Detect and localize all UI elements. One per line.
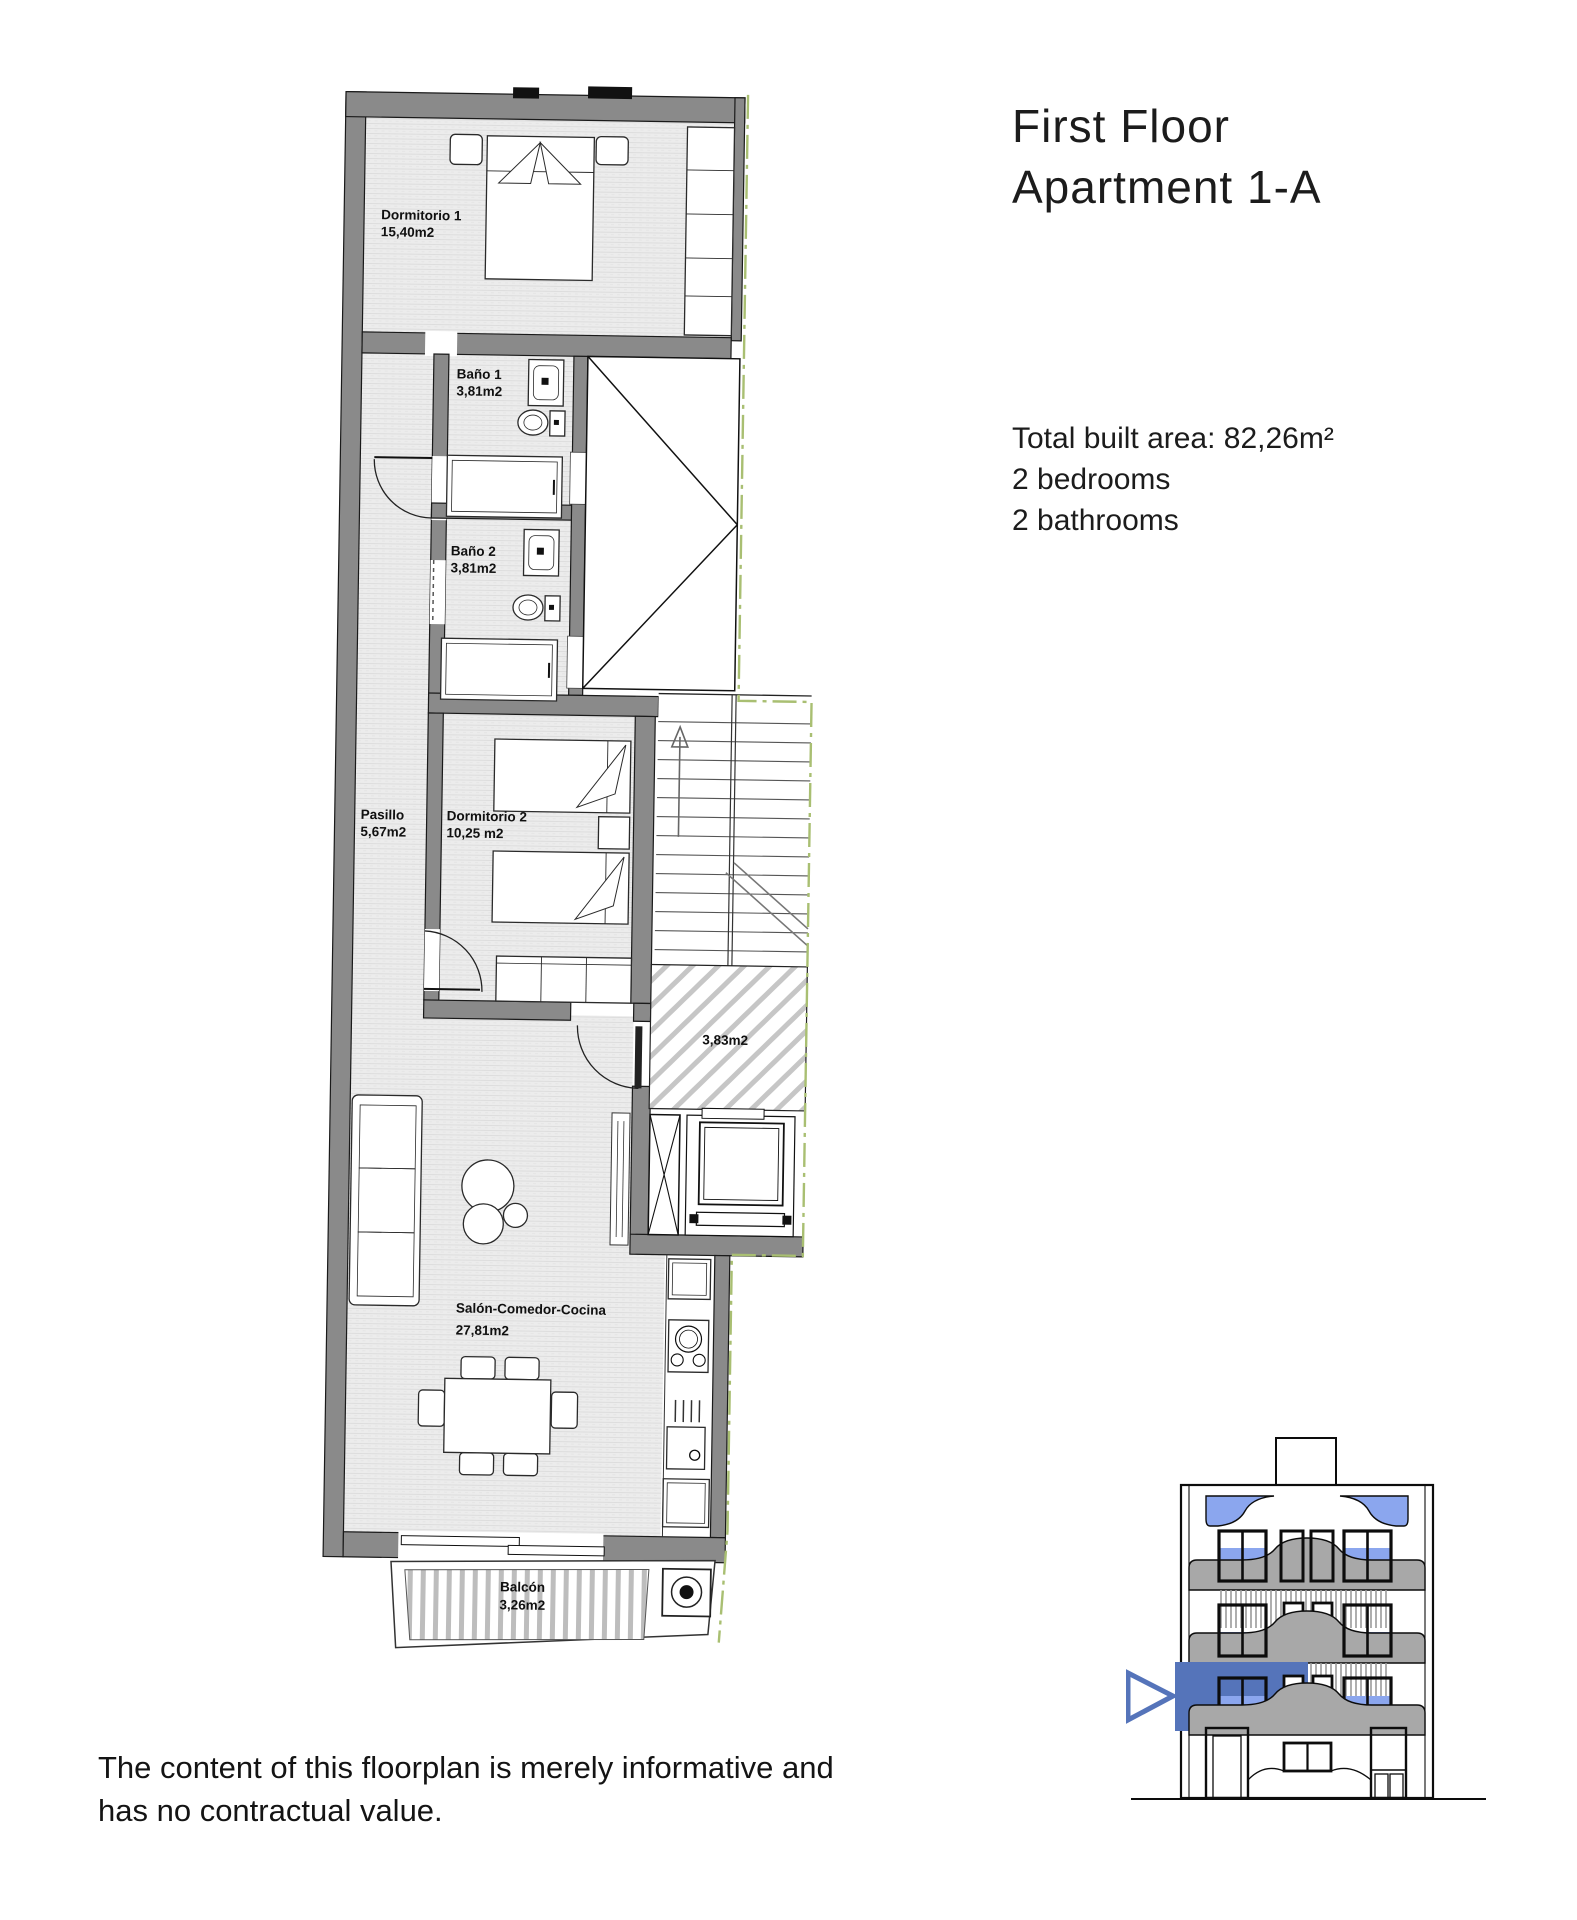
bathrooms-text: 2 bathrooms [1012, 500, 1334, 541]
landing-area-label: 3,83m2 [702, 1032, 748, 1048]
bano2-area: 3,81m2 [450, 560, 496, 576]
void-area [583, 356, 740, 690]
wardrobe [684, 127, 734, 336]
kitchen-sink-unit [666, 1427, 705, 1470]
dormitorio2-furniture [491, 739, 635, 1003]
title-line-2: Apartment 1-A [1012, 157, 1322, 218]
page-title: First Floor Apartment 1-A [1012, 96, 1322, 218]
chair [459, 1453, 493, 1476]
dormitorio2-label: Dormitorio 2 [447, 808, 527, 824]
elevator [648, 1107, 795, 1236]
sliding-door [401, 1536, 519, 1547]
chair [505, 1357, 539, 1380]
toilet [518, 410, 548, 435]
salon-area: 27,81m2 [456, 1322, 510, 1338]
landing-area: 3,83m2 [649, 965, 807, 1111]
toilet [513, 595, 543, 620]
sliding-door [508, 1545, 604, 1556]
disclaimer-line-2: has no contractual value. [98, 1789, 834, 1832]
floorplan-page: 3,83m2 [0, 0, 1577, 1920]
summary-block: Total built area: 82,26m² 2 bedrooms 2 b… [1012, 418, 1334, 541]
bedrooms-text: 2 bedrooms [1012, 459, 1334, 500]
bano2-label: Baño 2 [451, 543, 496, 559]
salon-wall-window [610, 1113, 630, 1245]
building-elevation [1126, 1418, 1506, 1838]
unit-pointer-arrow-icon [1128, 1673, 1173, 1720]
balcon-label: Balcón [500, 1579, 545, 1595]
chair [503, 1453, 537, 1476]
nightstand [450, 134, 482, 164]
chair [461, 1357, 495, 1380]
double-bed [485, 136, 594, 281]
dormitorio1-label: Dormitorio 1 [381, 207, 462, 223]
balcon-area: 3,26m2 [499, 1597, 545, 1613]
pasillo-area: 5,67m2 [360, 824, 406, 840]
pasillo-label: Pasillo [361, 807, 405, 823]
dormitorio2-area: 10,25 m2 [446, 825, 503, 841]
chair [418, 1390, 445, 1426]
building-elevation-svg [1126, 1418, 1506, 1838]
roof-tower [1276, 1438, 1336, 1485]
bano1-area: 3,81m2 [456, 383, 502, 399]
dormitorio1-area: 15,40m2 [381, 224, 435, 240]
disclaimer-line-1: The content of this floorplan is merely … [98, 1746, 834, 1789]
floor-plan-svg: 3,83m2 [263, 76, 848, 1685]
dining-table [444, 1378, 551, 1454]
salon-label: Salón-Comedor-Cocina [456, 1300, 607, 1317]
fridge [663, 1479, 710, 1528]
bano1-label: Baño 1 [457, 366, 503, 382]
nightstand [596, 137, 628, 165]
chair [551, 1392, 578, 1428]
shower [446, 455, 562, 518]
disclaimer: The content of this floorplan is merely … [98, 1746, 834, 1832]
shower [441, 638, 558, 701]
kitchen-cabinet [668, 1259, 711, 1300]
title-line-1: First Floor [1012, 96, 1322, 157]
total-area-text: Total built area: 82,26m² [1012, 418, 1334, 459]
floor-plan: 3,83m2 [263, 76, 848, 1685]
staircase [654, 694, 811, 967]
nightstand [598, 817, 629, 849]
